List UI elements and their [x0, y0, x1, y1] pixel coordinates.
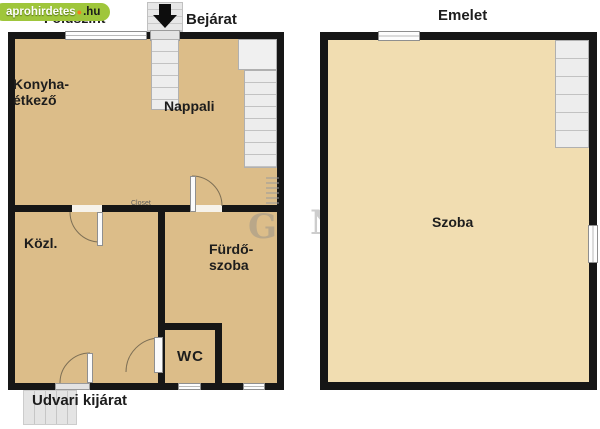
wall: [320, 32, 597, 40]
door-leaf: [87, 353, 93, 383]
wall: [589, 32, 597, 390]
room-label-kitchen-line2: étkező: [13, 92, 69, 108]
corner-stairs: [244, 70, 277, 168]
room-label-wc: WC: [177, 348, 204, 365]
window: [65, 31, 147, 40]
room-label-bath: Fürdő- szoba: [209, 241, 253, 273]
wall: [215, 323, 222, 390]
watermark-letter-g: G: [248, 210, 277, 244]
wall: [320, 382, 597, 390]
watermark-dot-icon: ●: [77, 7, 82, 17]
watermark-site-text: aprohirdetes: [6, 6, 76, 18]
watermark-tld-text: .hu: [83, 6, 100, 18]
aprohirdetes-watermark-badge: aprohirdetes●.hu: [0, 3, 110, 21]
upper-floor-title: Emelet: [438, 7, 487, 24]
room-label-hall: Közl.: [24, 235, 57, 251]
door-leaf: [154, 337, 163, 373]
exit-label: Udvari kijárat: [32, 392, 127, 409]
stairs-landing: [238, 39, 277, 70]
door-leaf: [97, 212, 103, 246]
room-label-szoba: Szoba: [432, 214, 473, 230]
room-label-kitchen: Konyha- étkező: [13, 76, 69, 108]
entrance-arrow-head-icon: [153, 15, 177, 28]
entrance-label: Bejárat: [186, 11, 237, 28]
wall: [320, 32, 328, 390]
window: [243, 383, 265, 390]
exit-doorway: [55, 383, 90, 390]
door-leaf: [190, 176, 196, 212]
closet-label: Closet: [131, 200, 151, 207]
window: [178, 383, 201, 390]
room-label-bath-line1: Fürdő-: [209, 241, 253, 257]
room-label-living: Nappali: [164, 98, 215, 114]
room-label-bath-line2: szoba: [209, 257, 253, 273]
floorplan-image: Földszint aprohirdetes●.hu Bejárat Emele…: [0, 0, 600, 429]
window: [378, 31, 420, 41]
wall: [158, 323, 222, 330]
upper-floor-stairs: [555, 40, 589, 148]
watermark-stripe-mark: [266, 177, 279, 205]
door-opening: [72, 205, 102, 212]
room-label-kitchen-line1: Konyha-: [13, 76, 69, 92]
window: [588, 225, 598, 263]
